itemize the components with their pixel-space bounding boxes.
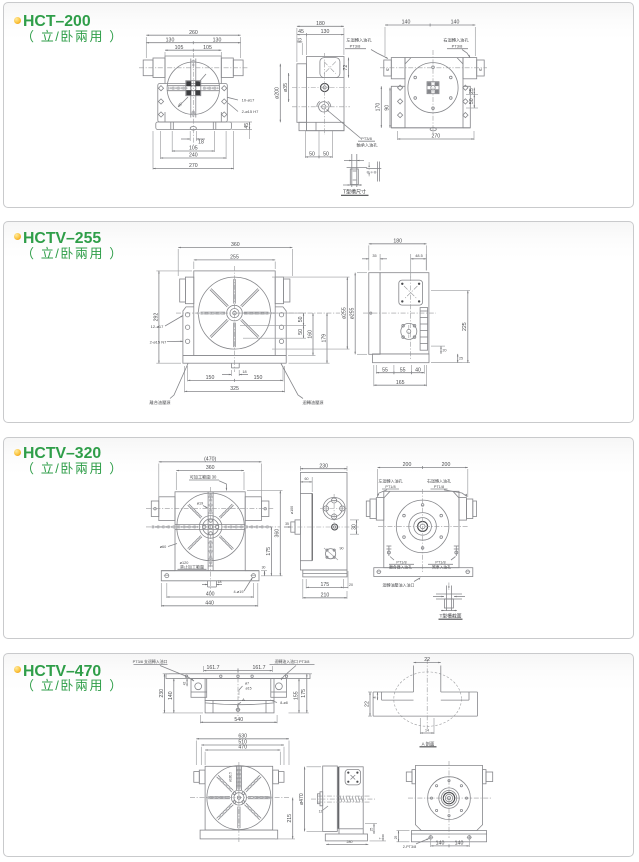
svg-text:ø470: ø470	[299, 793, 305, 805]
svg-text:14: 14	[425, 728, 429, 732]
svg-text:10-ø17: 10-ø17	[242, 98, 255, 103]
svg-text:ø180.5: ø180.5	[229, 772, 233, 782]
svg-text:270: 270	[431, 134, 440, 140]
svg-text:A: A	[242, 697, 245, 702]
svg-text:50: 50	[323, 152, 329, 158]
svg-text:M: M	[479, 68, 482, 72]
svg-text:迴轉油壓油入油口: 迴轉油壓油入油口	[383, 582, 415, 588]
svg-text:179: 179	[322, 334, 328, 343]
svg-text:8-ø8: 8-ø8	[280, 701, 287, 705]
svg-text:PT3/8 支迴轉入油口: PT3/8 支迴轉入油口	[133, 659, 168, 664]
svg-text:325: 325	[230, 386, 239, 392]
svg-text:M: M	[386, 68, 389, 72]
svg-text:140: 140	[168, 691, 174, 700]
svg-text:18: 18	[242, 370, 246, 374]
svg-text:迴轉油入油口 PT3/8: 迴轉油入油口 PT3/8	[275, 659, 310, 664]
svg-text:軸承入油孔: 軸承入油孔	[357, 142, 379, 149]
svg-text:72: 72	[343, 65, 349, 71]
svg-text:440: 440	[205, 600, 214, 606]
svg-text:2-PT3/8: 2-PT3/8	[403, 845, 417, 849]
svg-text:22: 22	[365, 701, 371, 707]
svg-text:360: 360	[206, 465, 215, 471]
svg-text:470: 470	[238, 745, 247, 751]
svg-text:260: 260	[189, 30, 198, 36]
svg-text:PT1/8: PT1/8	[435, 560, 445, 564]
svg-text:50: 50	[469, 98, 475, 104]
svg-text:42: 42	[182, 682, 186, 686]
svg-text:170: 170	[376, 103, 382, 112]
svg-text:左迴轉入油孔: 左迴轉入油孔	[379, 477, 403, 483]
svg-text:165: 165	[396, 380, 405, 386]
svg-text:200: 200	[442, 462, 451, 468]
svg-text:140: 140	[455, 841, 464, 847]
svg-text:離合器入油孔: 離合器入油孔	[389, 565, 412, 570]
svg-text:ø60: ø60	[160, 545, 167, 549]
svg-text:140: 140	[436, 841, 445, 847]
svg-text:8: 8	[373, 696, 377, 698]
svg-text:右迴轉入油孔: 右迴轉入油孔	[443, 37, 469, 44]
svg-text:30: 30	[262, 566, 266, 570]
svg-text:PT1/8: PT1/8	[385, 485, 395, 489]
svg-text:270: 270	[189, 163, 198, 169]
svg-text:155: 155	[293, 691, 299, 700]
svg-text:PT1/8: PT1/8	[396, 560, 406, 564]
svg-text:55: 55	[382, 367, 388, 373]
svg-text:ø15: ø15	[245, 686, 251, 690]
svg-text:20: 20	[349, 583, 353, 587]
svg-text:T型槽尺寸: T型槽尺寸	[343, 189, 366, 196]
svg-text:40: 40	[415, 367, 421, 373]
svg-text:175: 175	[321, 582, 330, 588]
svg-text:160: 160	[308, 330, 314, 339]
svg-text:105: 105	[189, 146, 198, 152]
svg-text:ø7: ø7	[245, 681, 249, 685]
svg-text:50: 50	[309, 152, 315, 158]
svg-text:45: 45	[298, 29, 304, 35]
svg-text:離合油壓源: 離合油壓源	[150, 399, 172, 406]
svg-text:50: 50	[298, 329, 304, 335]
svg-text:292: 292	[153, 313, 159, 322]
svg-text:4-ø19: 4-ø19	[234, 590, 244, 594]
svg-text:左迴轉入油孔: 左迴轉入油孔	[346, 37, 372, 44]
svg-text:25: 25	[370, 828, 374, 832]
svg-text:ø100: ø100	[290, 506, 294, 514]
svg-text:175: 175	[301, 689, 307, 698]
svg-text:(470): (470)	[204, 456, 216, 462]
svg-text:240: 240	[189, 153, 198, 159]
svg-text:ø35: ø35	[283, 83, 289, 92]
svg-text:禁止加工範圍: 禁止加工範圍	[180, 563, 204, 569]
svg-text:PT3/8: PT3/8	[361, 136, 372, 141]
svg-text:60: 60	[305, 477, 309, 481]
svg-text:PT1/8: PT1/8	[434, 485, 444, 489]
svg-text:161.7: 161.7	[207, 665, 220, 671]
svg-text:175: 175	[266, 547, 272, 556]
svg-text:150: 150	[206, 375, 215, 381]
svg-text:35: 35	[285, 522, 289, 526]
svg-text:280: 280	[347, 840, 353, 844]
svg-text:迴轉油壓源: 迴轉油壓源	[303, 399, 325, 406]
svg-text:180: 180	[316, 21, 325, 27]
svg-text:ø255: ø255	[342, 307, 348, 319]
svg-text:2-ø15 H7: 2-ø15 H7	[242, 109, 259, 114]
svg-text:右迴轉入油孔: 右迴轉入油孔	[427, 477, 451, 483]
svg-text:130: 130	[166, 37, 175, 43]
svg-text:35: 35	[372, 254, 376, 258]
svg-text:T型槽截面: T型槽截面	[439, 613, 461, 620]
svg-text:45: 45	[244, 123, 250, 129]
svg-text:30: 30	[351, 524, 357, 530]
svg-text:18: 18	[218, 580, 222, 584]
svg-text:105: 105	[203, 45, 212, 51]
svg-text:50: 50	[298, 316, 304, 322]
svg-text:7: 7	[379, 837, 383, 839]
svg-text:20: 20	[443, 349, 447, 353]
svg-text:25: 25	[297, 38, 301, 42]
svg-text:PT3/8: PT3/8	[452, 44, 463, 49]
svg-text:12-ø17: 12-ø17	[151, 324, 164, 329]
svg-text:360: 360	[275, 529, 281, 538]
svg-text:25: 25	[459, 357, 463, 361]
svg-text:18: 18	[198, 140, 204, 146]
svg-text:ø200: ø200	[275, 87, 281, 99]
svg-text:130: 130	[321, 29, 330, 35]
svg-text:12: 12	[319, 809, 323, 813]
svg-text:PT3/8: PT3/8	[350, 44, 361, 49]
svg-text:230: 230	[159, 689, 165, 698]
svg-text:48.5: 48.5	[415, 254, 422, 258]
svg-text:225: 225	[462, 322, 468, 331]
svg-text:230: 230	[319, 463, 328, 469]
svg-text:180: 180	[393, 238, 402, 244]
svg-text:400: 400	[206, 592, 215, 598]
svg-text:140: 140	[402, 20, 411, 26]
svg-text:540: 540	[234, 717, 243, 723]
svg-text:255: 255	[230, 255, 239, 261]
svg-text:25: 25	[394, 836, 398, 840]
svg-text:55: 55	[400, 367, 406, 373]
svg-text:90: 90	[385, 105, 391, 111]
svg-text:360: 360	[231, 242, 240, 248]
svg-text:200: 200	[403, 462, 412, 468]
svg-text:140: 140	[451, 20, 460, 26]
svg-text:130: 130	[213, 37, 222, 43]
svg-text:22: 22	[424, 657, 430, 663]
svg-text:210: 210	[321, 592, 330, 598]
svg-text:25: 25	[469, 88, 475, 94]
svg-text:150: 150	[254, 375, 263, 381]
svg-text:ø255: ø255	[350, 307, 356, 319]
svg-text:630: 630	[238, 733, 247, 739]
svg-text:105: 105	[175, 45, 184, 51]
svg-text:煞車入油孔: 煞車入油孔	[432, 565, 451, 570]
svg-text:161.7: 161.7	[253, 665, 266, 671]
svg-text:ø19: ø19	[197, 502, 204, 506]
svg-text:215: 215	[287, 814, 293, 823]
svg-text:90: 90	[340, 547, 344, 551]
svg-text:2-ø15 N7: 2-ø15 N7	[150, 339, 167, 344]
